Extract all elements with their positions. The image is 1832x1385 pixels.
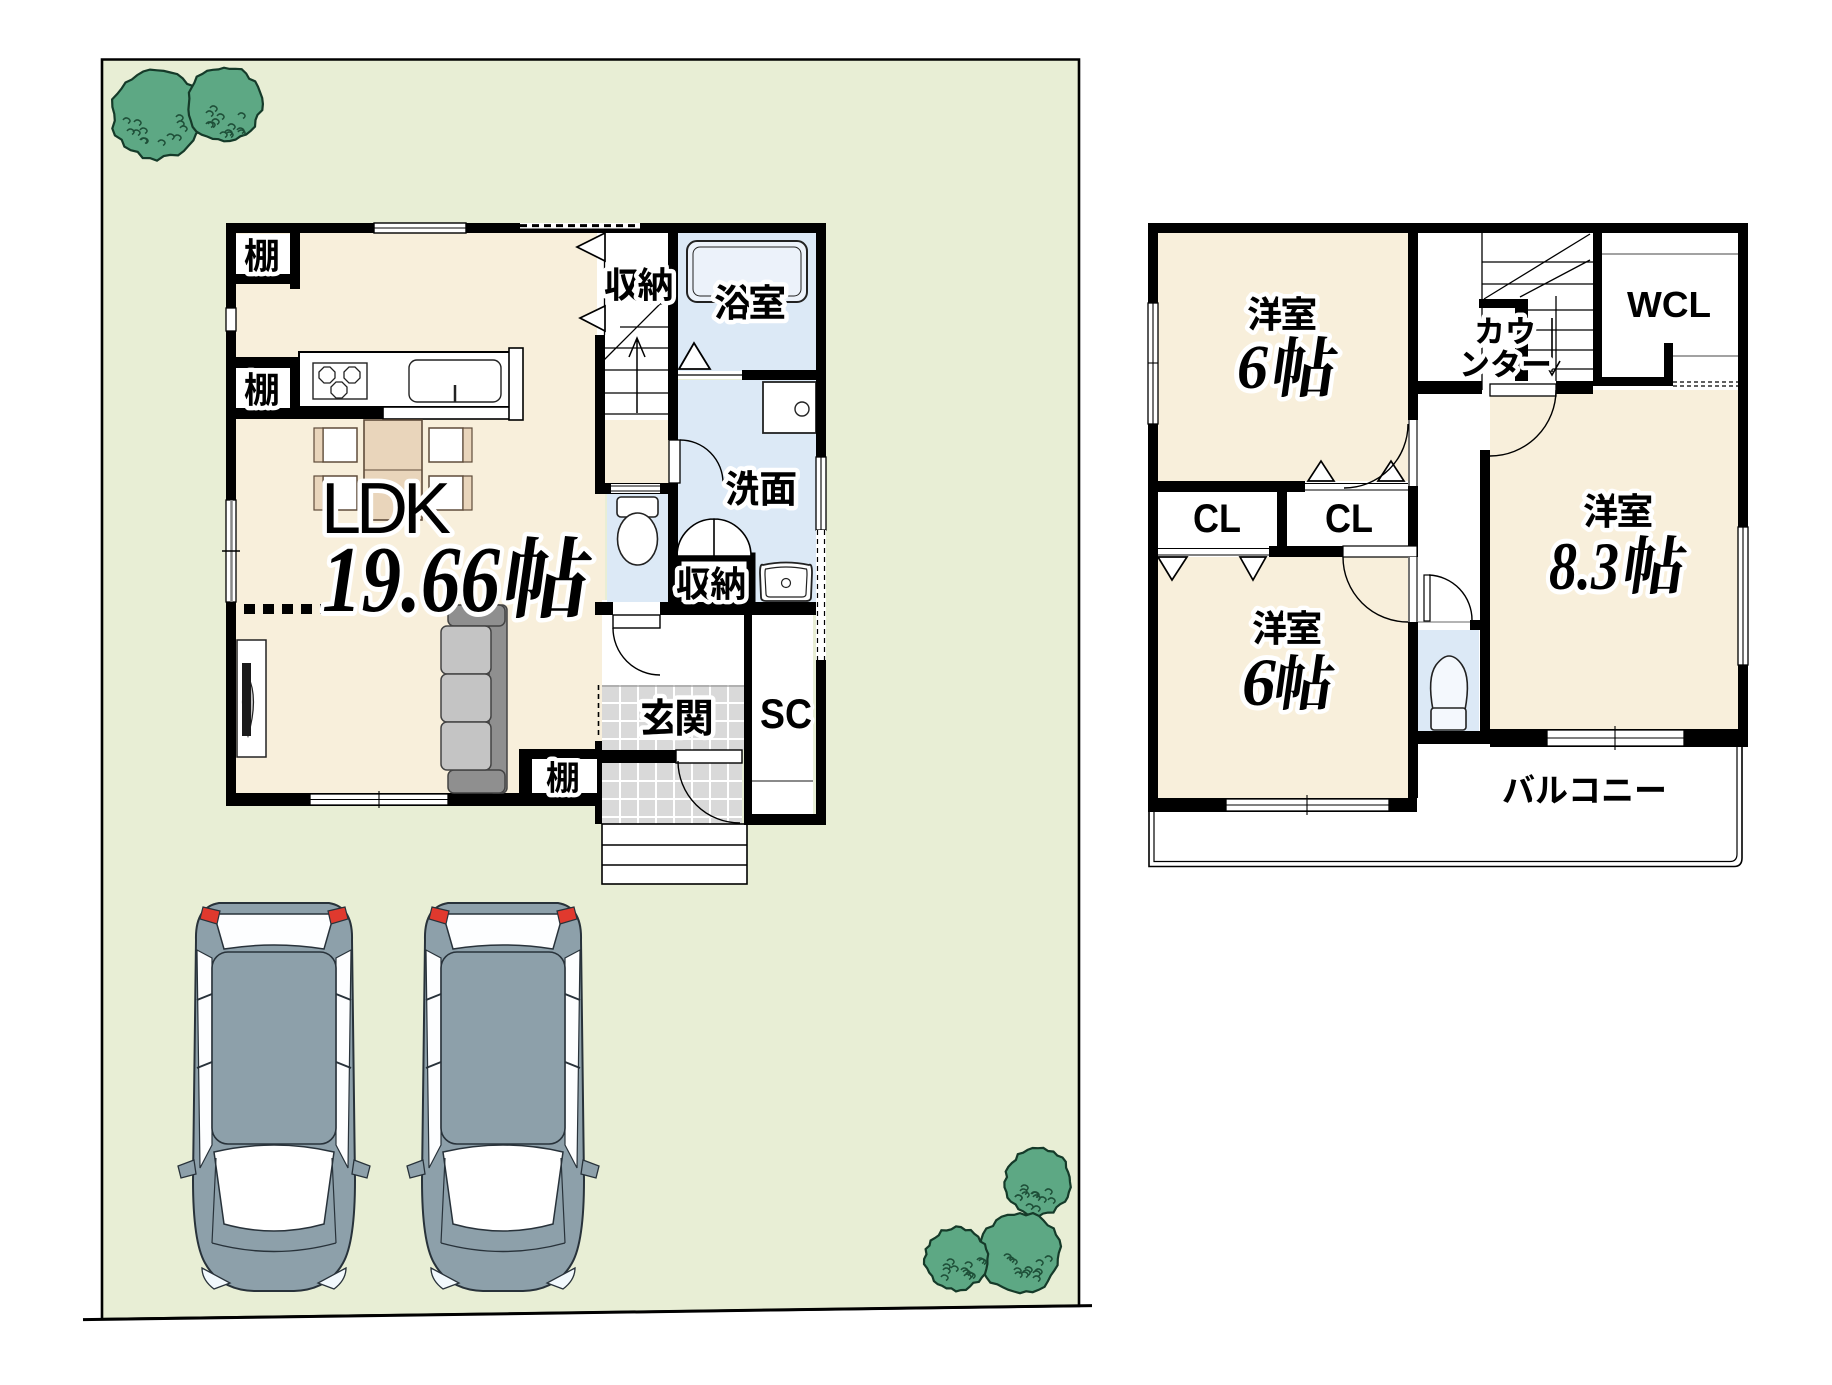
svg-text:6: 6 (1237, 334, 1268, 402)
svg-text:SC: SC (760, 690, 812, 737)
svg-text:19.66: 19.66 (322, 528, 500, 632)
svg-text:WCL: WCL (1627, 284, 1711, 325)
svg-text:CL: CL (1325, 497, 1373, 541)
svg-text:8.3: 8.3 (1549, 528, 1619, 604)
svg-text:6: 6 (1242, 644, 1276, 720)
svg-text:CL: CL (1193, 497, 1241, 541)
